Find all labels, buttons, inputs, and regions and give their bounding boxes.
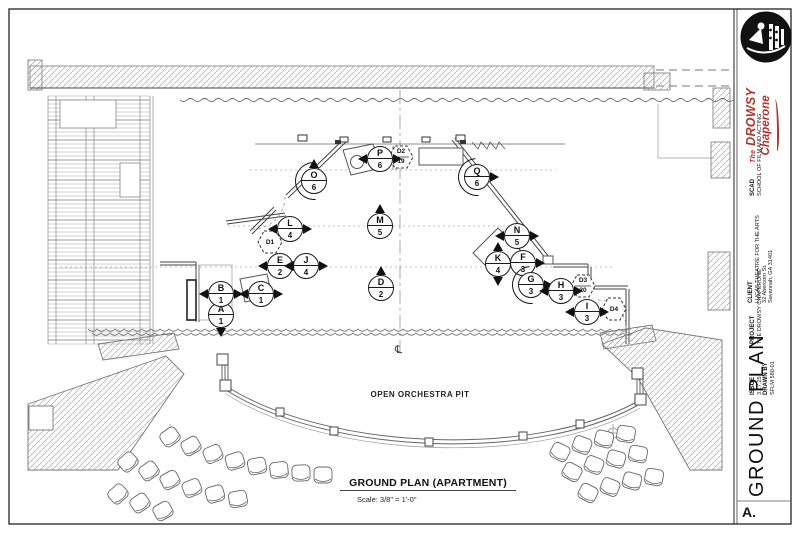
scene-shift-symbols: A1B1C1D2E2F3G3H3I3J4K4L4M5N5O6P6Q6D1D219… — [0, 0, 800, 533]
studio-label: SCAD — [750, 114, 757, 196]
project-label: PROJECT — [750, 269, 757, 344]
studio-value: SCHOOL OF FILM AND ACTING — [757, 114, 764, 196]
titleblock-studio: SCAD SCHOOL OF FILM AND ACTING — [750, 114, 764, 196]
client-line-3: Savannah, GA 31401 — [768, 215, 775, 303]
shift-marker-I: I3 — [574, 299, 600, 325]
shift-marker-N: N5 — [504, 223, 530, 249]
sheet-title: GROUND PLAN — [746, 334, 769, 497]
shift-marker-P: P6 — [367, 146, 393, 172]
shift-marker-H: H3 — [548, 278, 574, 304]
shift-marker-O: O6 — [301, 168, 327, 194]
show-logo-swash — [773, 99, 779, 151]
lucas-theatre-logo — [739, 10, 793, 66]
shift-marker-D: D2 — [368, 275, 394, 301]
project-value: THE DROWSY CHAPERONE — [757, 269, 764, 344]
sheet-number: A. — [742, 504, 756, 520]
shift-marker-B: B1 — [208, 281, 234, 307]
shift-marker-Q: Q6 — [464, 164, 490, 190]
shift-marker-C: C1 — [248, 281, 274, 307]
titleblock-project: PROJECT THE DROWSY CHAPERONE — [750, 269, 764, 344]
shift-marker-K: K4 — [485, 251, 511, 277]
drawing-sheet: A1B1C1D2E2F3G3H3I3J4K4L4M5N5O6P6Q6D1D219… — [0, 0, 800, 533]
shift-marker-M: M5 — [367, 213, 393, 239]
shift-marker-L: L4 — [277, 216, 303, 242]
drawn-by-value: SFLM 580-01 — [770, 361, 777, 395]
shift-marker-J: J4 — [293, 253, 319, 279]
